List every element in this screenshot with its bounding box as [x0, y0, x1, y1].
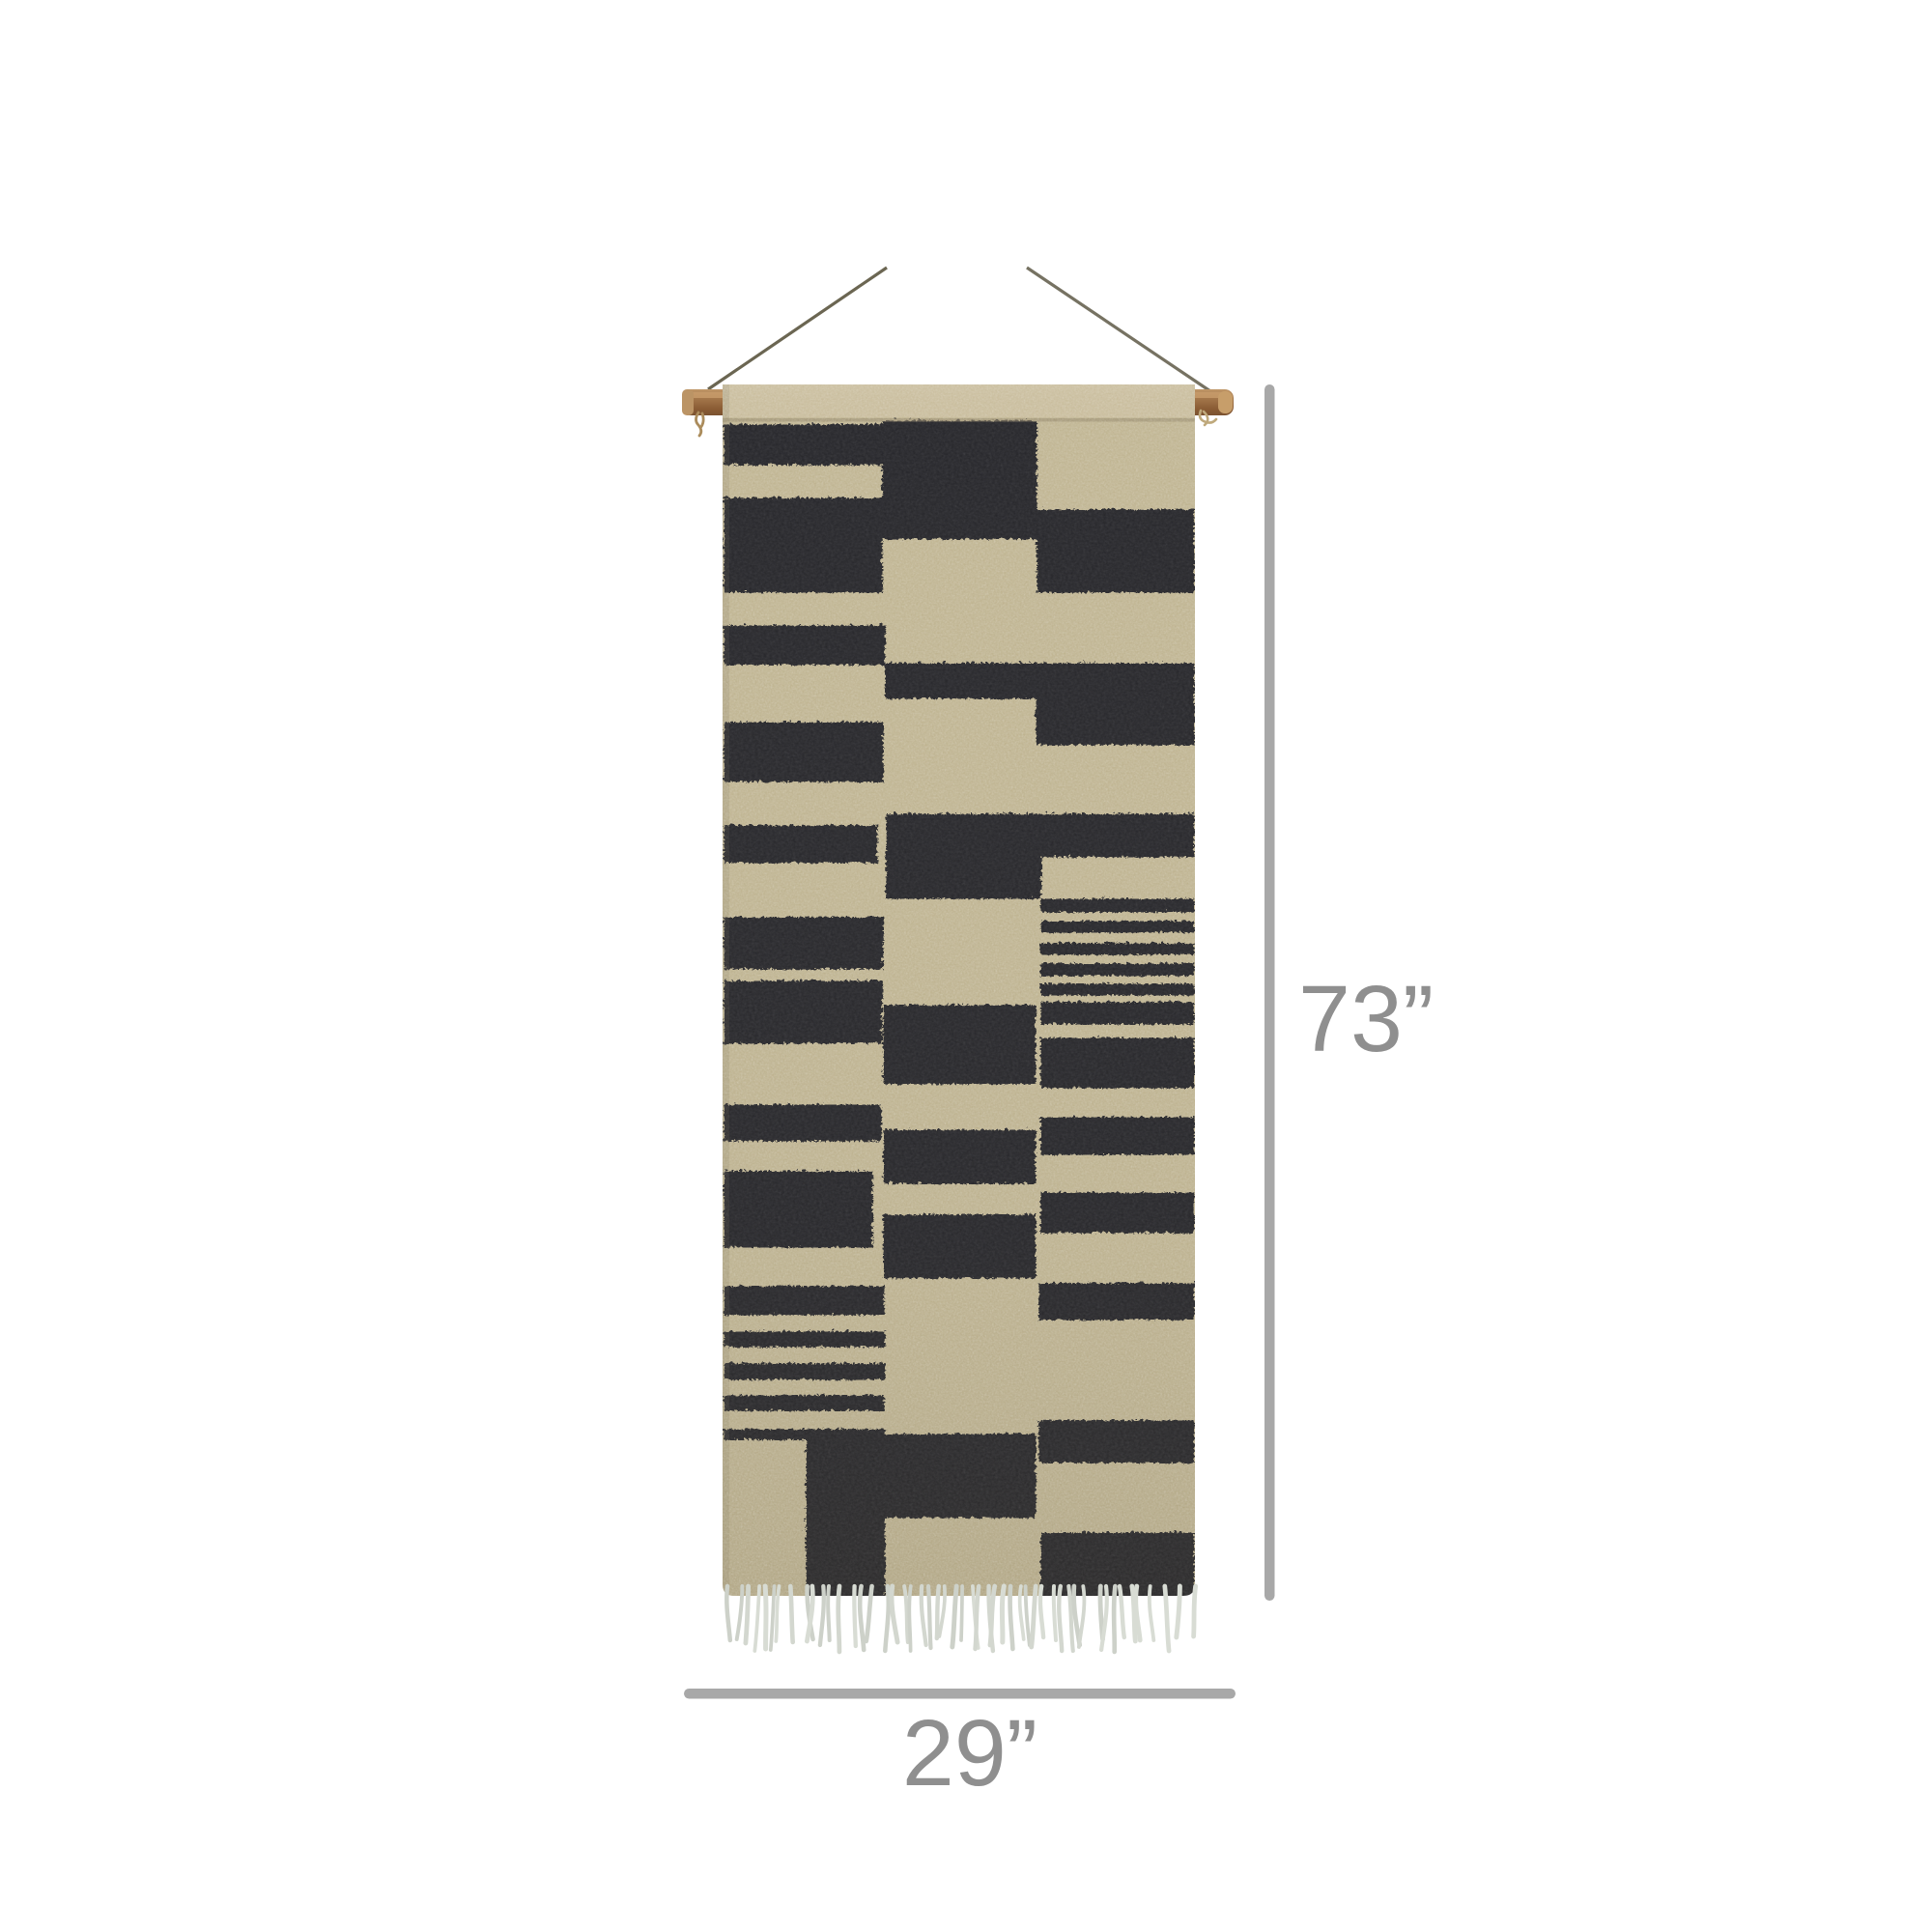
svg-text:29”: 29”	[902, 1700, 1037, 1805]
svg-text:73”: 73”	[1298, 966, 1434, 1071]
